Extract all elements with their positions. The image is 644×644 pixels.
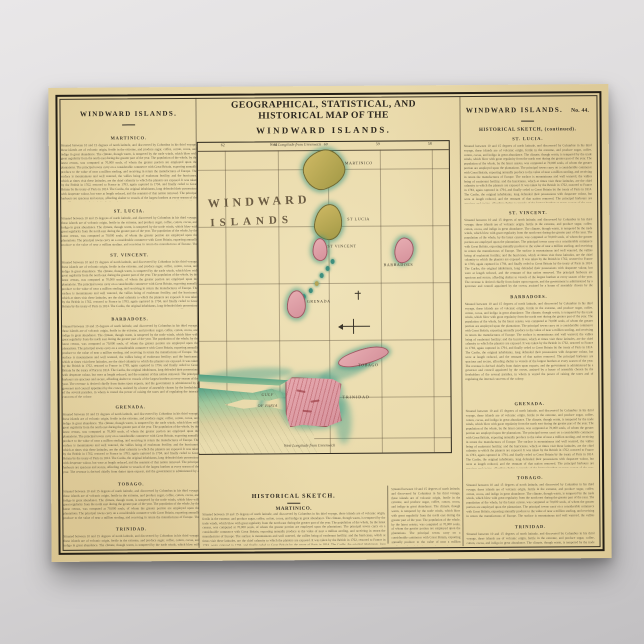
map-title-line1: GEOGRAPHICAL, STATISTICAL, AND HISTORICA…: [198, 98, 448, 122]
section-title: BARBADOES.: [465, 294, 593, 300]
section-text: Situated between 10 and 15 degrees of no…: [63, 534, 199, 548]
island-label: TRINIDAD: [343, 395, 370, 400]
island-martinico: [303, 150, 343, 187]
continuation-text-block: Situated between 10 and 15 degrees of no…: [391, 485, 460, 545]
section-text: Situated between 10 and 15 degrees of no…: [464, 144, 592, 204]
historical-sketch-header: HISTORICAL SKETCH.: [202, 492, 385, 501]
gulf-label: OF PARIA: [258, 403, 278, 408]
section-title: ST. LUCIA.: [464, 136, 592, 142]
section-text: Situated between 10 and 15 degrees of no…: [466, 409, 594, 469]
grenadines-islet: [309, 288, 313, 293]
island-grenada: [287, 290, 304, 316]
longitude-tick: 59: [376, 142, 380, 147]
island-barbadoes: [394, 237, 411, 261]
section-title: TOBAGO.: [63, 481, 199, 487]
island-st-lucia: [314, 204, 340, 238]
grenadines-islet: [315, 281, 319, 286]
right-text-column: WINDWARD ISLANDS. No. 44. HISTORICAL SKE…: [463, 96, 594, 545]
longitude-tick: 60: [324, 142, 328, 147]
section-text: Situated between 10 and 15 degrees of no…: [62, 324, 199, 398]
compass-line: [353, 319, 354, 334]
windward-islands-map: West Longitude from Greenwich 62 61 60 5…: [197, 140, 452, 455]
section-text: Situated between 10 and 15 degrees of no…: [63, 412, 199, 475]
section-text: Situated between 10 and 15 degrees of no…: [464, 218, 592, 288]
section-title: ST. VINCENT.: [464, 210, 592, 216]
mountain-ridge: [296, 389, 305, 393]
graticule-line: [199, 339, 450, 341]
gulf-label: GULF: [261, 392, 273, 397]
mountain-ridge: [303, 410, 312, 413]
island-tobago: [337, 349, 387, 363]
section-text: Situated between 10 and 15 degrees of no…: [466, 483, 594, 518]
graticule-line: [432, 149, 435, 452]
section-text: Situated between 10 and 15 degrees of no…: [63, 489, 199, 520]
map-title: GEOGRAPHICAL, STATISTICAL, AND HISTORICA…: [198, 98, 448, 136]
grenadines-islet: [320, 273, 324, 278]
graticule-line: [199, 282, 450, 284]
divider-rule: [287, 503, 300, 504]
map-title-line2: WINDWARD ISLANDS.: [199, 124, 449, 136]
island-label: BARBADOES: [384, 262, 414, 267]
compass-icon: [338, 318, 372, 336]
island-st-vincent: [312, 238, 325, 259]
divider-rule: [521, 121, 534, 122]
divider-rule: [122, 124, 135, 125]
section-text: Situated between 10 and 15 degrees of no…: [391, 487, 460, 545]
mountain-ridge: [310, 399, 319, 402]
island-label: ST VINCENT: [327, 244, 356, 249]
island-label: MARTINICO: [345, 161, 373, 166]
trinidad-shape: [285, 377, 341, 427]
section-text: Situated between 10 and 15 degrees of no…: [202, 512, 385, 546]
section-text: Situated between 10 and 15 degrees of no…: [61, 216, 197, 246]
longitude-tick: 61: [274, 142, 278, 147]
product-background: WINDWARD ISLANDS. MARTINICO. Situated be…: [0, 0, 644, 644]
section-text: Situated between 10 and 15 degrees of no…: [62, 260, 198, 310]
section-title: ST. LUCIA.: [61, 208, 197, 214]
section-text: Situated between 10 and 15 degrees of no…: [61, 143, 197, 202]
left-text-column: WINDWARD ISLANDS. MARTINICO. Situated be…: [60, 100, 199, 548]
section-title: GRENADA.: [63, 404, 199, 410]
island-label: ST LUCIA: [347, 217, 370, 222]
historical-sketch-continued-header: HISTORICAL SKETCH, (continued).: [464, 126, 592, 132]
section-title: TRINIDAD.: [63, 526, 199, 532]
island-label: GRENADA: [307, 299, 331, 304]
compass-line: [341, 326, 370, 327]
map-region-label: WINDWARD ISLANDS: [208, 193, 295, 230]
longitude-bottom-label: West Longitude from Greenwich: [284, 443, 335, 448]
section-title: ST. VINCENT.: [62, 252, 198, 258]
section-title: TOBAGO.: [466, 475, 594, 481]
grenadines-islet: [326, 266, 330, 271]
island-label: TOBAGO: [358, 363, 378, 368]
right-column-header: WINDWARD ISLANDS.: [466, 106, 563, 115]
section-title: MARTINICO.: [61, 135, 197, 141]
longitude-tick: 58: [428, 141, 432, 146]
left-column-header: WINDWARD ISLANDS.: [61, 110, 197, 119]
grenadines-islet: [331, 259, 335, 264]
section-title: TRINIDAD.: [466, 524, 594, 530]
plate-number: No. 44.: [571, 107, 589, 113]
historical-sketch-column: HISTORICAL SKETCH. MARTINICO. Situated b…: [202, 486, 385, 547]
graticule-line: [380, 150, 383, 453]
section-title: GRENADA.: [466, 401, 594, 407]
longitude-tick: 62: [221, 143, 225, 148]
right-column-header-row: WINDWARD ISLANDS. No. 44.: [463, 106, 591, 115]
section-text: Situated between 10 and 15 degrees of no…: [466, 532, 594, 545]
island-trinidad: [285, 377, 339, 425]
anchor-icon: [355, 291, 361, 300]
map-poster: WINDWARD ISLANDS. MARTINICO. Situated be…: [48, 84, 611, 562]
section-text: Situated between 10 and 15 degrees of no…: [465, 302, 594, 395]
section-title: BARBADOES.: [62, 316, 198, 322]
